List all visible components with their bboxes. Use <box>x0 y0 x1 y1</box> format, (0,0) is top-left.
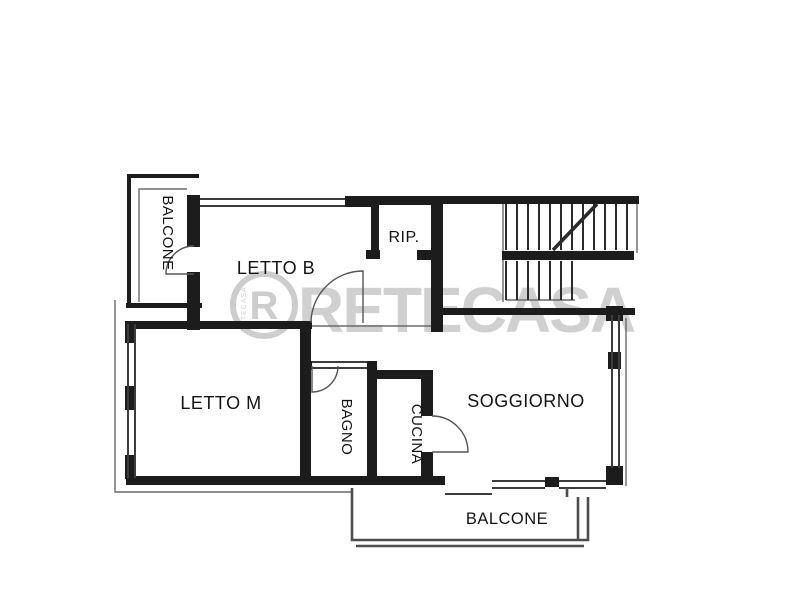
wall-lettom-left-jamb-mid <box>125 386 134 410</box>
wall-stairwell-top <box>443 196 639 204</box>
wall-lettob-bottom <box>187 321 312 329</box>
wall-bottom-window-jamb <box>545 477 559 487</box>
wall-balcony-tl-left <box>127 174 131 304</box>
room-label-bagno: BAGNO <box>338 399 355 456</box>
room-label-balcone-top-left: BALCONE <box>159 195 176 270</box>
wall-bagno-top-jamb <box>300 361 312 370</box>
wall-jamb-upper-left <box>187 195 200 247</box>
wall-lettom-left-jamb-top <box>125 321 134 343</box>
wall-cucina-top <box>367 370 421 379</box>
wall-lettom-left-jamb-bottom <box>125 455 134 479</box>
wall-soggiorno-right-bottom <box>606 466 623 485</box>
stair-landing-bar <box>502 251 634 260</box>
floorplan-canvas: R RETECASA RETECASA <box>0 0 800 600</box>
room-label-rip: RIP. <box>388 229 419 246</box>
floorplan-svg: R RETECASA RETECASA <box>0 0 800 600</box>
wall-balcony-tl-top <box>127 174 199 178</box>
room-label-cucina: CUCINA <box>408 404 425 465</box>
room-label-letto-m: LETTO M <box>180 393 261 413</box>
wall-lettom-right <box>300 321 311 484</box>
wall-lettom-bottom <box>126 476 312 485</box>
wall-rip-door-jamb-right <box>417 250 431 260</box>
room-label-balcone-bottom: BALCONE <box>466 510 548 528</box>
wall-rip-right <box>431 196 443 332</box>
wall-soggiorno-right-top <box>606 306 623 321</box>
room-label-soggiorno: SOGGIORNO <box>467 391 585 411</box>
room-label-letto-b: LETTO B <box>237 258 315 278</box>
wall-lettom-top <box>126 321 204 329</box>
wall-bottom-main <box>311 476 445 485</box>
wall-rip-door-jamb-left <box>366 250 380 259</box>
